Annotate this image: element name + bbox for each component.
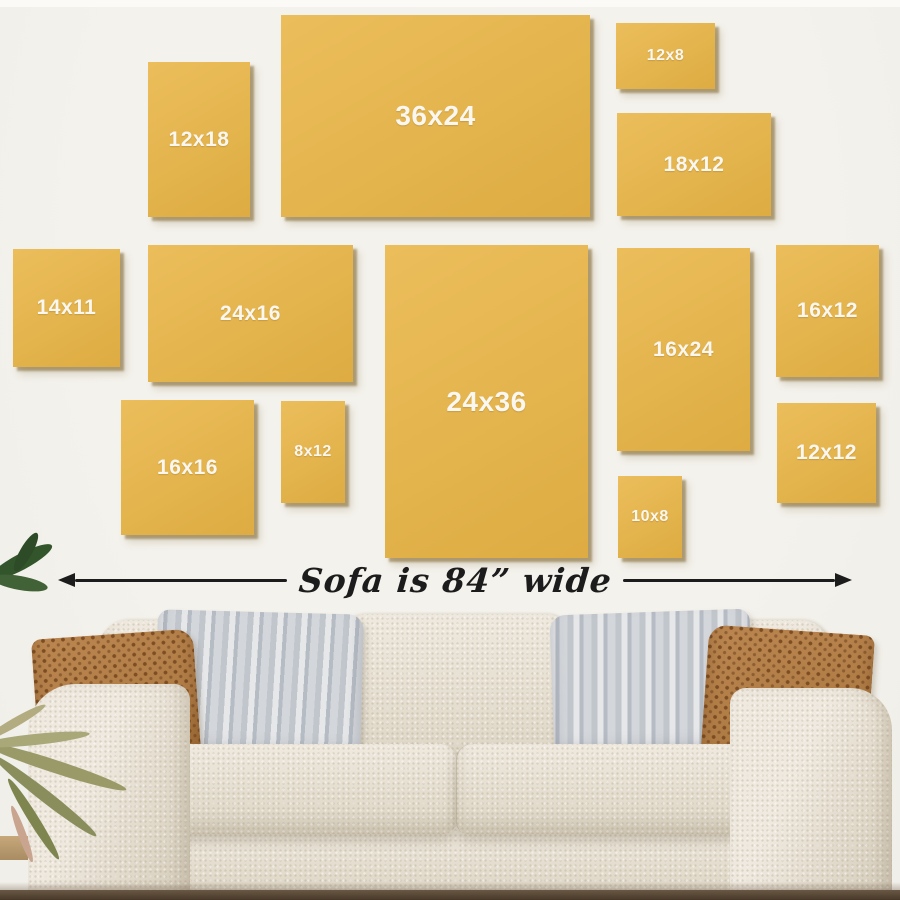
frame-8x12: 8x12 [281, 401, 345, 503]
frame-size-label: 16x12 [797, 299, 858, 323]
frame-wall: 12x1836x2412x818x1214x1124x1624x3616x241… [0, 0, 900, 600]
frame-10x8: 10x8 [618, 476, 682, 558]
frame-16x16: 16x16 [121, 400, 254, 535]
frame-24x16: 24x16 [148, 245, 353, 382]
floor-line [0, 890, 900, 900]
frame-size-label: 14x11 [37, 296, 97, 320]
sofa-width-label: Sofa is 84” wide [285, 561, 625, 600]
frame-size-label: 12x8 [647, 47, 685, 65]
plant-leaves-top [0, 546, 96, 616]
leaf-icon [0, 571, 49, 595]
frame-36x24: 36x24 [281, 15, 590, 217]
frame-size-label: 18x12 [664, 153, 725, 177]
frame-size-label: 12x12 [796, 441, 857, 465]
frame-16x24: 16x24 [617, 248, 750, 451]
frame-size-label: 16x24 [653, 338, 714, 362]
frame-size-label: 36x24 [395, 100, 475, 132]
frame-12x12: 12x12 [777, 403, 876, 503]
seat-cushion-left [168, 744, 456, 834]
right-arrow-icon [835, 573, 852, 587]
frame-24x36: 24x36 [385, 245, 588, 558]
seat-cushion-right [456, 744, 747, 834]
sofa-width-dimension: Sofa is 84” wide [58, 556, 852, 604]
dimension-line-left [75, 579, 287, 582]
plant-leaves-bottom [0, 718, 170, 858]
frame-12x8: 12x8 [616, 23, 715, 89]
frame-12x18: 12x18 [148, 62, 250, 217]
wall-art-size-guide: 12x1836x2412x818x1214x1124x1624x3616x241… [0, 0, 900, 900]
frame-16x12: 16x12 [776, 245, 879, 377]
frame-size-label: 8x12 [294, 443, 332, 461]
frame-size-label: 16x16 [157, 456, 218, 480]
frame-size-label: 24x16 [220, 302, 281, 326]
frame-size-label: 12x18 [169, 128, 230, 152]
sofa-arm-right [730, 688, 892, 898]
frame-14x11: 14x11 [13, 249, 120, 367]
dimension-line-right [623, 579, 835, 582]
frame-size-label: 10x8 [631, 508, 669, 526]
frame-size-label: 24x36 [446, 386, 526, 418]
frame-18x12: 18x12 [617, 113, 771, 216]
